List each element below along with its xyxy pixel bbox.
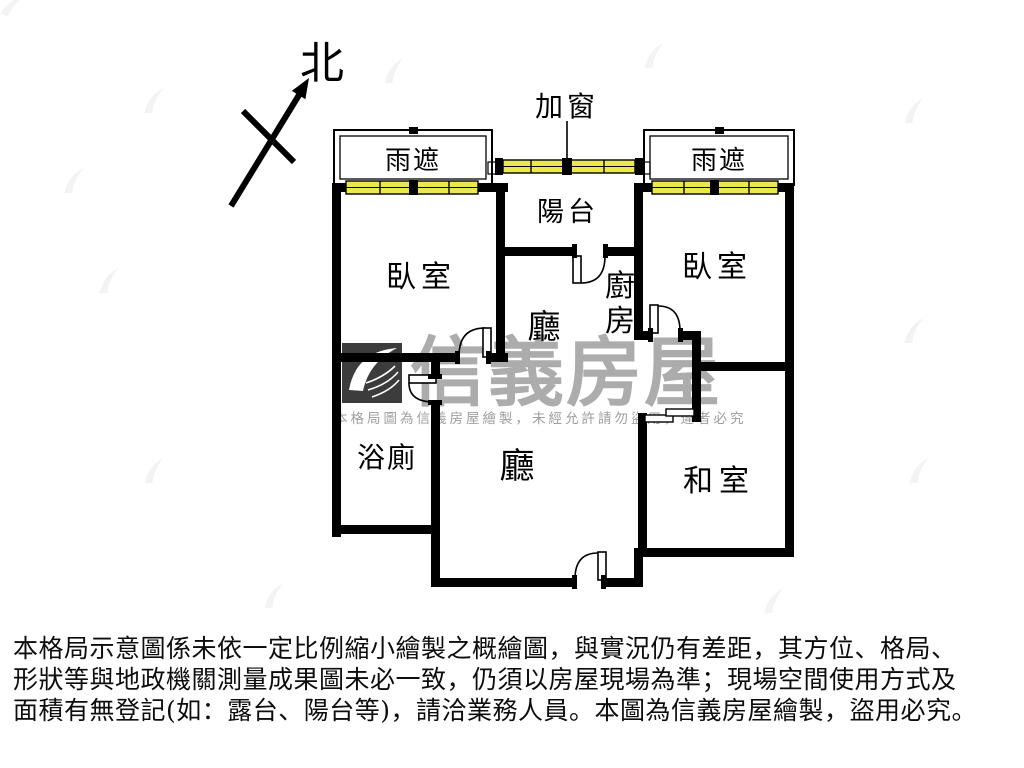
disclaimer-line-3: 面積有無登記(如：露台、陽台等)，請洽業務人員。本圖為信義房屋繪製，盜用必究。 [13,695,1019,726]
north-label: 北 [300,38,344,89]
bedroom-left-label: 臥室 [386,260,456,295]
bedroom-right-label: 臥室 [682,250,752,285]
door-balcony [572,244,608,283]
wall [634,548,643,587]
wall [638,548,794,557]
watermark-brand-text: 信義房屋 [410,328,722,417]
wall [638,413,647,557]
balcony-label: 陽台 [537,197,599,228]
disclaimer-block: 本格局示意圖係未依一定比例縮小繪製之概繪圖，與實況仍有差距，其方位、格局、 形狀… [13,633,1019,726]
disclaimer-line-2: 形狀等與地政機關測量成果圖未必一致，仍須以房屋現場為準；現場空間使用方式及 [13,664,1019,695]
kitchen-label-char1: 廚 [605,269,635,304]
wall [496,247,577,256]
rain-shelter-left-label: 雨遮 [385,146,441,176]
floorplan-page: 信義房屋 本格局圖為信義房屋繪製，未經允許請勿盜用，違者必究 北 雨遮 雨遮 加… [0,0,1024,768]
bedroom-right-window [652,180,778,195]
watermark-logo [342,343,402,403]
wall [431,578,575,587]
hall-main-label: 廳 [499,447,534,487]
shelter-top-tick [715,127,724,134]
north-compass: 北 [231,38,344,206]
wall [692,362,794,371]
wall [332,525,440,534]
wall [431,403,440,531]
kitchen-label-char2: 房 [605,304,635,339]
wall [496,183,505,362]
hall-upper-label: 廳 [528,307,561,346]
shelter-top-tick [409,127,418,134]
added-window-label: 加窗 [535,90,599,123]
bathroom-label: 浴廁 [357,441,417,474]
wall [431,525,440,587]
faint-watermark-pattern [0,0,935,615]
rain-shelter-right-label: 雨遮 [691,146,747,176]
balcony-window [488,158,650,175]
disclaimer-line-1: 本格局示意圖係未依一定比例縮小繪製之概繪圖，與實況仍有差距，其方位、格局、 [13,633,1019,664]
north-arrow-shaft [231,95,299,206]
wall [634,183,643,340]
bedroom-left-window [346,180,478,195]
tatami-label: 和室 [683,464,755,499]
door-entrance [572,552,606,589]
